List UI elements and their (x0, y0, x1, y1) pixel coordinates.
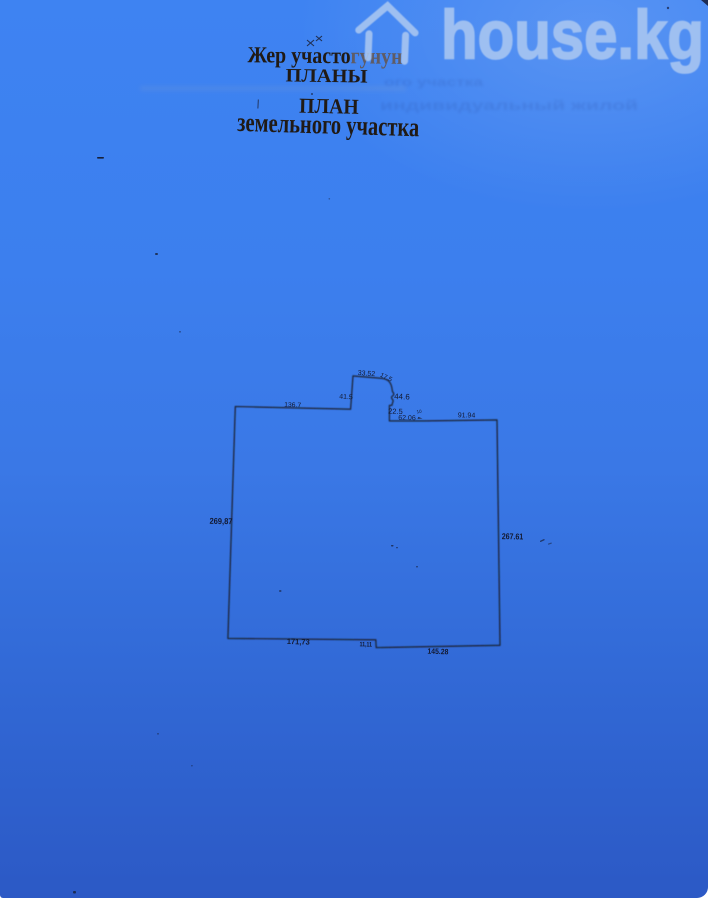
svg-text:ПЛАНЫ: ПЛАНЫ (285, 65, 368, 87)
svg-text:44.6: 44.6 (394, 392, 410, 402)
svg-text:145.28: 145.28 (427, 647, 449, 657)
svg-text:индивидуальный жилой: индивидуальный жилой (380, 98, 638, 113)
svg-text:269,87: 269,87 (209, 516, 232, 526)
svg-text:41.5: 41.5 (339, 394, 353, 402)
svg-text:267.61: 267.61 (502, 531, 524, 541)
svg-text:10: 10 (416, 409, 422, 415)
svg-text:136.7: 136.7 (284, 402, 301, 410)
svg-text:house.kg: house.kg (441, 0, 704, 73)
svg-text:62.06: 62.06 (398, 415, 416, 422)
svg-text:11,11: 11,11 (359, 641, 372, 648)
svg-text:земельного участка: земельного участка (237, 107, 420, 142)
svg-text:Жер участогунун: Жер участогунун (247, 42, 402, 69)
svg-text:17.5: 17.5 (379, 372, 394, 384)
svg-text:33.52: 33.52 (357, 370, 375, 378)
svg-text:171,73: 171,73 (287, 637, 311, 647)
svg-text:91.94: 91.94 (458, 412, 476, 419)
